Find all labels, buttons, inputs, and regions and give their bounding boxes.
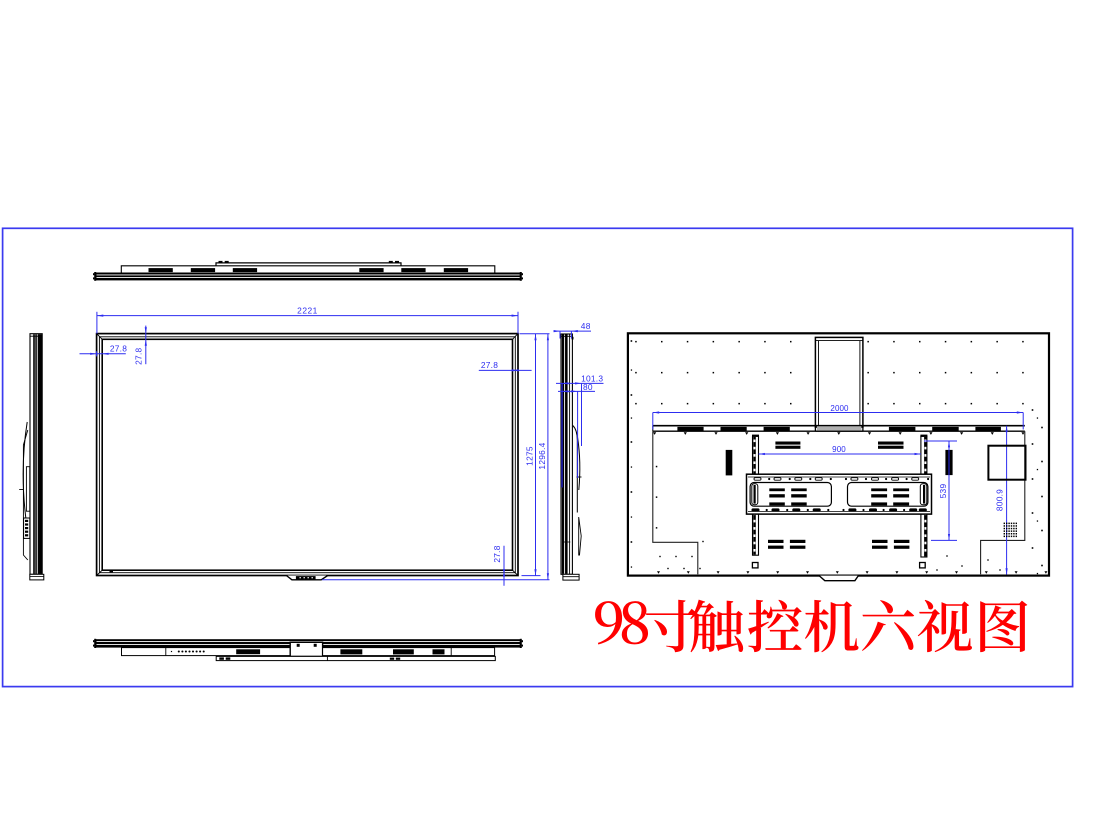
svg-text:1296.4: 1296.4 bbox=[537, 442, 547, 469]
svg-text:48: 48 bbox=[581, 321, 591, 331]
svg-text:900: 900 bbox=[832, 445, 846, 454]
svg-text:80: 80 bbox=[583, 382, 593, 392]
svg-text:27.8: 27.8 bbox=[492, 545, 502, 562]
svg-text:27.8: 27.8 bbox=[110, 344, 127, 354]
svg-text:27.8: 27.8 bbox=[481, 360, 498, 370]
svg-text:2000: 2000 bbox=[830, 404, 849, 413]
svg-text:2221: 2221 bbox=[297, 305, 318, 315]
svg-text:1275: 1275 bbox=[525, 446, 535, 466]
svg-text:27.8: 27.8 bbox=[133, 347, 143, 364]
svg-text:539: 539 bbox=[938, 484, 948, 499]
svg-text:800.9: 800.9 bbox=[995, 489, 1005, 511]
